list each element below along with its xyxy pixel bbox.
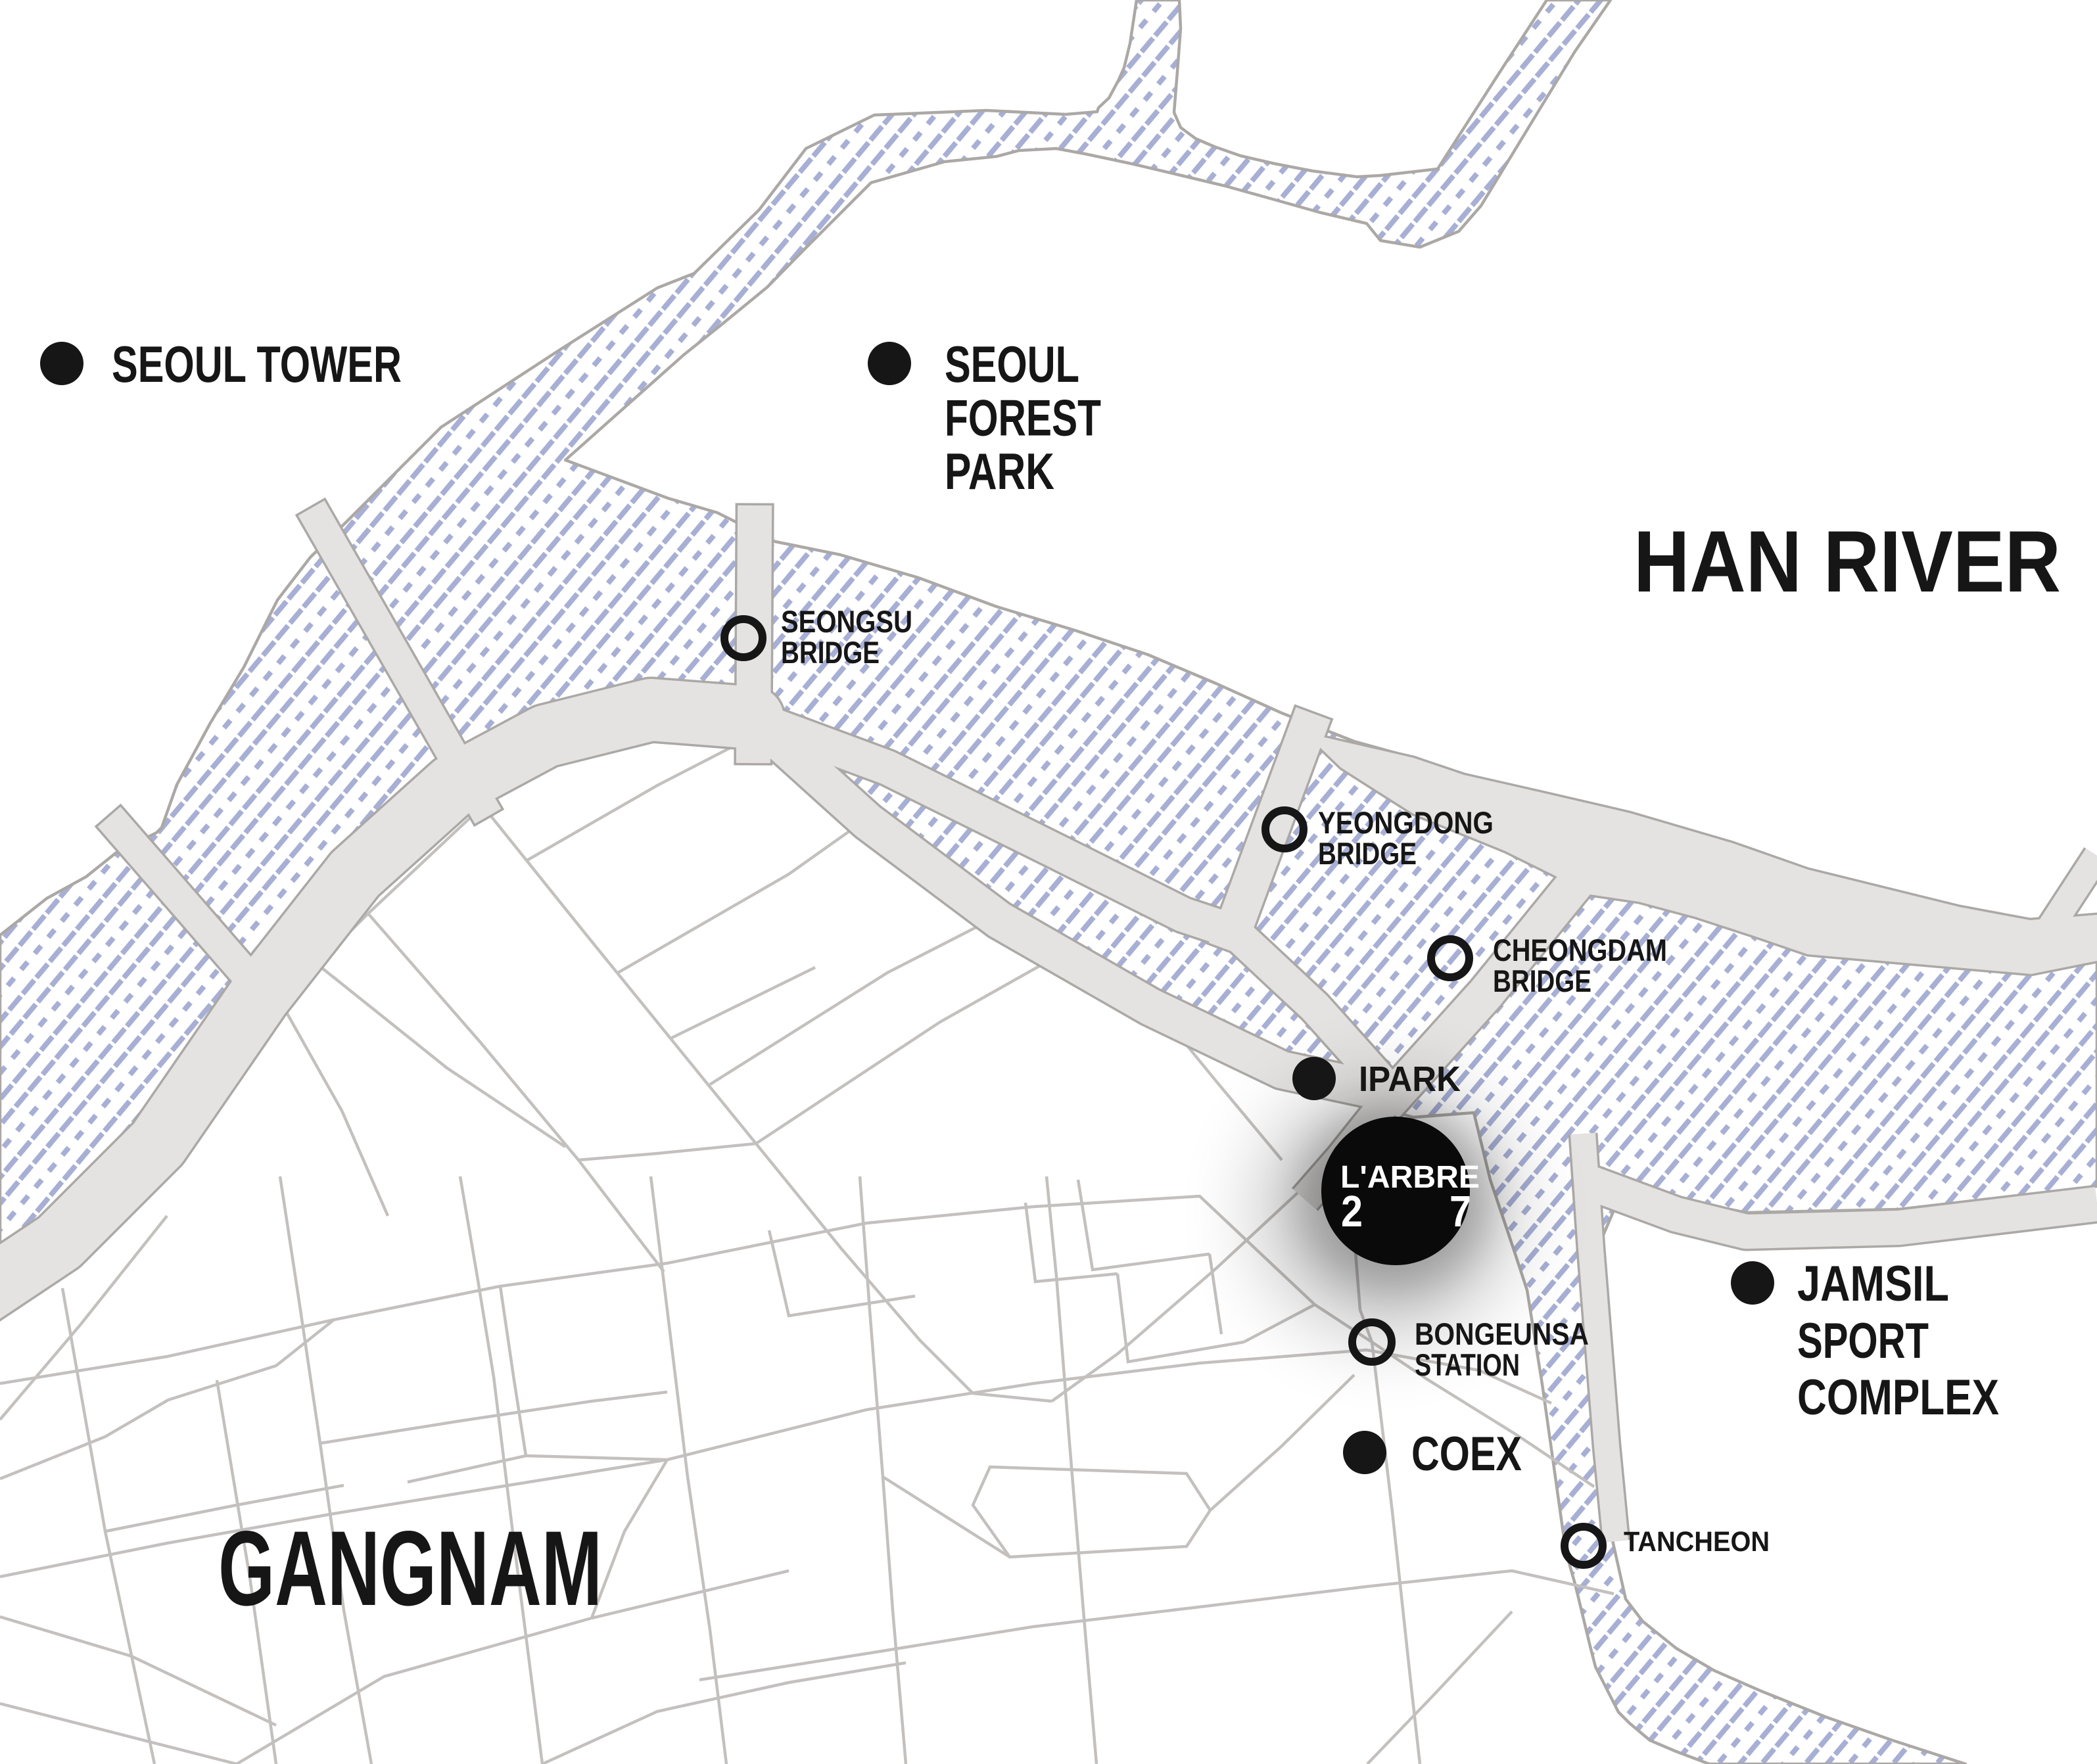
svg-text:BONGEUNSA: BONGEUNSA [1415,1317,1589,1351]
svg-text:PARK: PARK [945,443,1054,500]
svg-text:SEONGSU: SEONGSU [781,605,912,639]
svg-text:SPORT: SPORT [1797,1314,1929,1369]
svg-text:COMPLEX: COMPLEX [1797,1369,1999,1425]
svg-text:CHEONGDAM: CHEONGDAM [1493,934,1667,968]
svg-text:SEOUL: SEOUL [945,335,1079,392]
svg-text:SEOUL TOWER: SEOUL TOWER [112,335,402,392]
svg-text:FOREST: FOREST [945,390,1101,447]
svg-text:2: 2 [1341,1188,1363,1236]
svg-text:HAN RIVER: HAN RIVER [1634,513,2061,611]
svg-text:BRIDGE: BRIDGE [1493,964,1591,998]
svg-text:YEONGDONG: YEONGDONG [1318,806,1494,841]
svg-text:STATION: STATION [1415,1348,1520,1383]
svg-text:7: 7 [1449,1188,1471,1236]
svg-text:JAMSIL: JAMSIL [1797,1255,1949,1311]
svg-text:IPARK: IPARK [1359,1059,1461,1100]
svg-text:TANCHEON: TANCHEON [1624,1526,1770,1558]
svg-text:BRIDGE: BRIDGE [1318,837,1417,871]
svg-text:GANGNAM: GANGNAM [218,1510,602,1628]
svg-text:COEX: COEX [1411,1427,1522,1481]
svg-text:BRIDGE: BRIDGE [781,636,880,670]
